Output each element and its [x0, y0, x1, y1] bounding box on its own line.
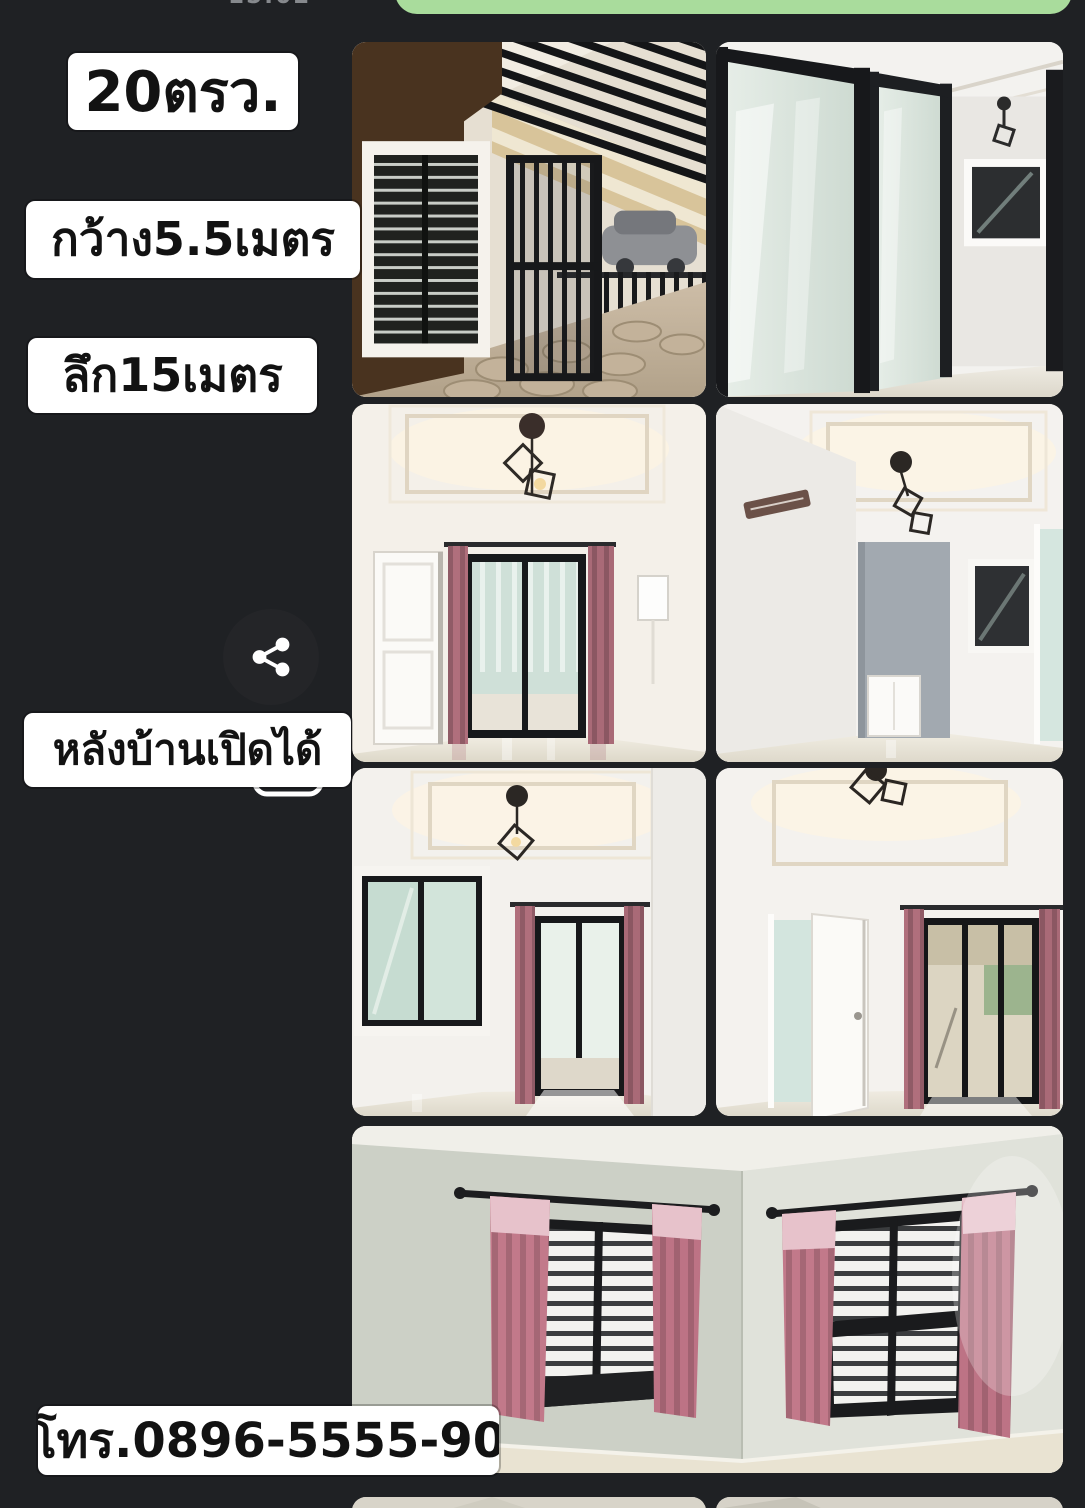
status-bar-time: 15:02: [228, 0, 348, 9]
photo-room-open-door: [716, 768, 1063, 1116]
photo-partial-left: [352, 1497, 706, 1508]
label-width-text: กว้าง5.5เมตร: [51, 203, 335, 276]
photo-room-window-sliding-door: [352, 768, 706, 1116]
label-phone-text: โทร.0896-5555-90: [38, 1406, 499, 1475]
label-area: 20ตรว.: [68, 53, 298, 130]
screenshot-root: 15:02: [0, 0, 1085, 1508]
label-depth-text: ลึก15เมตร: [62, 339, 283, 412]
photo-hallway-gray-wall: [716, 404, 1063, 762]
share-button[interactable]: [223, 609, 319, 705]
label-phone: โทร.0896-5555-90: [38, 1406, 499, 1475]
share-icon: [248, 634, 294, 680]
photo-hallway-curtains: [352, 404, 706, 762]
label-back-open-text: หลังบ้านเปิดได้: [53, 717, 323, 783]
photo-partial-right: [716, 1497, 1063, 1508]
chat-message-bubble[interactable]: [395, 0, 1072, 14]
label-width: กว้าง5.5เมตร: [26, 201, 360, 278]
label-back-open: หลังบ้านเปิดได้: [24, 713, 351, 787]
label-area-text: 20ตรว.: [84, 53, 281, 130]
label-depth: ลึก15เมตร: [28, 338, 317, 413]
photo-sliding-glass-doors: [716, 42, 1063, 397]
photo-front-porch: [352, 42, 706, 397]
